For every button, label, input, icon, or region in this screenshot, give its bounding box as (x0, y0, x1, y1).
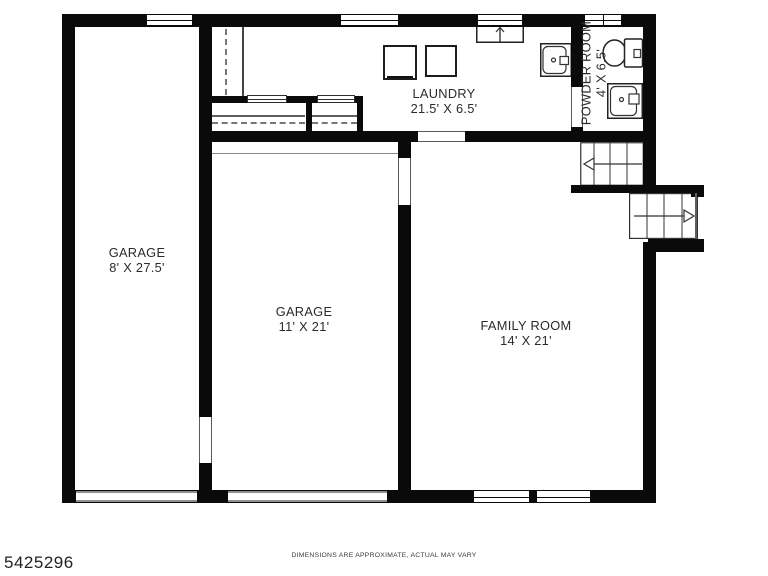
doorway-garage-family (398, 158, 411, 205)
disclaimer-text: DIMENSIONS ARE APPROXIMATE, ACTUAL MAY V… (0, 552, 768, 559)
room-dims: 11' X 21' (229, 320, 379, 335)
garage-door-left (76, 491, 197, 502)
wall-stairwell-top (571, 185, 704, 193)
closet2-rod (312, 122, 357, 124)
label-family-room: FAMILY ROOM 14' X 21' (446, 319, 606, 348)
stairs-down (629, 193, 698, 239)
room-name: FAMILY ROOM (446, 319, 606, 334)
washer-door-seal (387, 76, 413, 79)
room-dims: 14' X 21' (446, 334, 606, 349)
laundry-sink (540, 43, 572, 77)
wall-stairwell-right-top (691, 185, 704, 197)
floor-plan-canvas: GARAGE 8' X 27.5' GARAGE 11' X 21' FAMIL… (0, 0, 768, 576)
closet1-shelf-line (212, 115, 305, 117)
room-name: POWDER ROOM (580, 21, 595, 125)
stairwell-right-edge-line (695, 193, 697, 239)
room-name: GARAGE (62, 246, 212, 261)
closet1-rod (212, 122, 305, 124)
room-name: GARAGE (229, 305, 379, 320)
stairs-up (580, 142, 644, 186)
label-garage-main: GARAGE 11' X 21' (229, 305, 379, 334)
label-powder-room: POWDER ROOM 4' X 6.5' (580, 21, 609, 125)
room-name: LAUNDRY (369, 87, 519, 102)
washer (383, 45, 417, 80)
wall-right-upper (643, 14, 656, 193)
label-garage-left: GARAGE 8' X 27.5' (62, 246, 212, 275)
window-garage-left (146, 14, 193, 26)
closet-rod-entry (225, 29, 227, 95)
dryer (425, 45, 457, 77)
room-dims: 21.5' X 6.5' (369, 102, 519, 117)
wall-closet-divider (306, 96, 312, 132)
closet-sliding-door-1 (247, 95, 287, 103)
closet-entry-side-line (242, 27, 244, 96)
wall-right-lower (643, 242, 656, 503)
vanity-sink (607, 83, 643, 119)
closet-sliding-door-2 (317, 95, 355, 103)
room-dims: 4' X 6.5' (594, 21, 609, 125)
closet2-shelf-line (312, 115, 357, 117)
doorway-between-garages (199, 417, 212, 463)
garage-door-main (228, 491, 387, 502)
window-laundry-2 (477, 14, 523, 26)
doorway-laundry-family (418, 131, 465, 142)
garage-header-line (212, 153, 398, 154)
wall-stairwell-right-bottom (691, 239, 704, 252)
label-laundry: LAUNDRY 21.5' X 6.5' (369, 87, 519, 116)
wall-closet-right (357, 96, 363, 132)
window-laundry (340, 14, 399, 26)
room-dims: 8' X 27.5' (62, 261, 212, 276)
window-family-2 (536, 490, 591, 503)
window-family-1 (473, 490, 530, 503)
